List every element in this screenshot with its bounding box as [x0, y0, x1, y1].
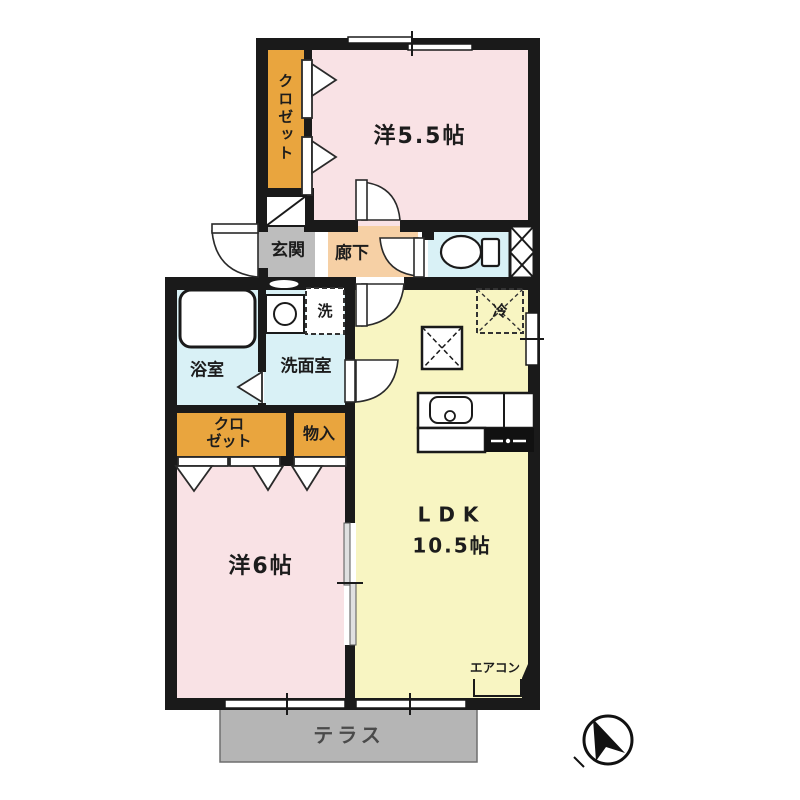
- ldk-label-line1: LDK: [412, 504, 491, 526]
- floorplan-page: { "plan": { "type": "apartment-floor-pla…: [0, 0, 800, 800]
- closet-top-panel-2: [302, 137, 312, 195]
- floor-hatch: [422, 327, 462, 369]
- room55-door-leaf: [356, 180, 367, 220]
- pipe-space: [510, 226, 534, 278]
- hallway-label: 廊下: [335, 245, 369, 264]
- floorplan-drawing: [0, 0, 800, 800]
- washroom-label: 洗面室: [281, 358, 332, 377]
- air-conditioner-spot: [474, 679, 521, 696]
- terrace-label: テラス: [313, 724, 385, 746]
- ldk-label: LDK 10.5帖: [412, 504, 491, 557]
- room6-terrace-window: [225, 700, 345, 708]
- gas-stove: [485, 428, 534, 452]
- ldk-hall-door-leaf: [356, 284, 367, 326]
- top-window-pane-right: [408, 44, 472, 50]
- closet-lower-line2: ゼット: [206, 433, 251, 450]
- entry-door-leaf: [212, 224, 258, 233]
- toilet-fixture: [441, 236, 499, 268]
- storage-panel: [294, 457, 346, 466]
- toilet-door-leaf: [414, 238, 424, 277]
- room-5-5-label: 洋5.5帖: [374, 125, 467, 149]
- entry-door-swing: [212, 231, 258, 277]
- room-6-label: 洋6帖: [228, 555, 293, 579]
- washbasin: [266, 295, 304, 333]
- fridge-label: 冷: [492, 303, 507, 320]
- wall-vent-lens: [269, 280, 299, 289]
- closet-lower-panel-2: [230, 457, 280, 466]
- washroom-door-leaf: [345, 360, 355, 402]
- closet-top-panel-1: [302, 60, 312, 118]
- north-arrow-icon: [574, 716, 632, 767]
- storage-label: 物入: [303, 425, 335, 443]
- aircon-label: エアコン: [470, 661, 520, 675]
- top-window-pane-left: [348, 37, 412, 43]
- closet-lower-line1: クロ: [206, 416, 251, 433]
- bathtub: [180, 290, 255, 347]
- closet-lower-label: クロ ゼット: [206, 416, 251, 451]
- genkan-label: 玄関: [271, 242, 305, 261]
- closet-lower-panel-1: [178, 457, 228, 466]
- closet-top-label: クロゼット: [277, 73, 294, 163]
- bathroom-label: 浴室: [190, 362, 224, 381]
- sink-drain: [445, 411, 455, 421]
- room-western-6: [172, 462, 348, 702]
- washer-label: 洗: [317, 303, 332, 320]
- ldk-label-line2: 10.5帖: [412, 535, 491, 557]
